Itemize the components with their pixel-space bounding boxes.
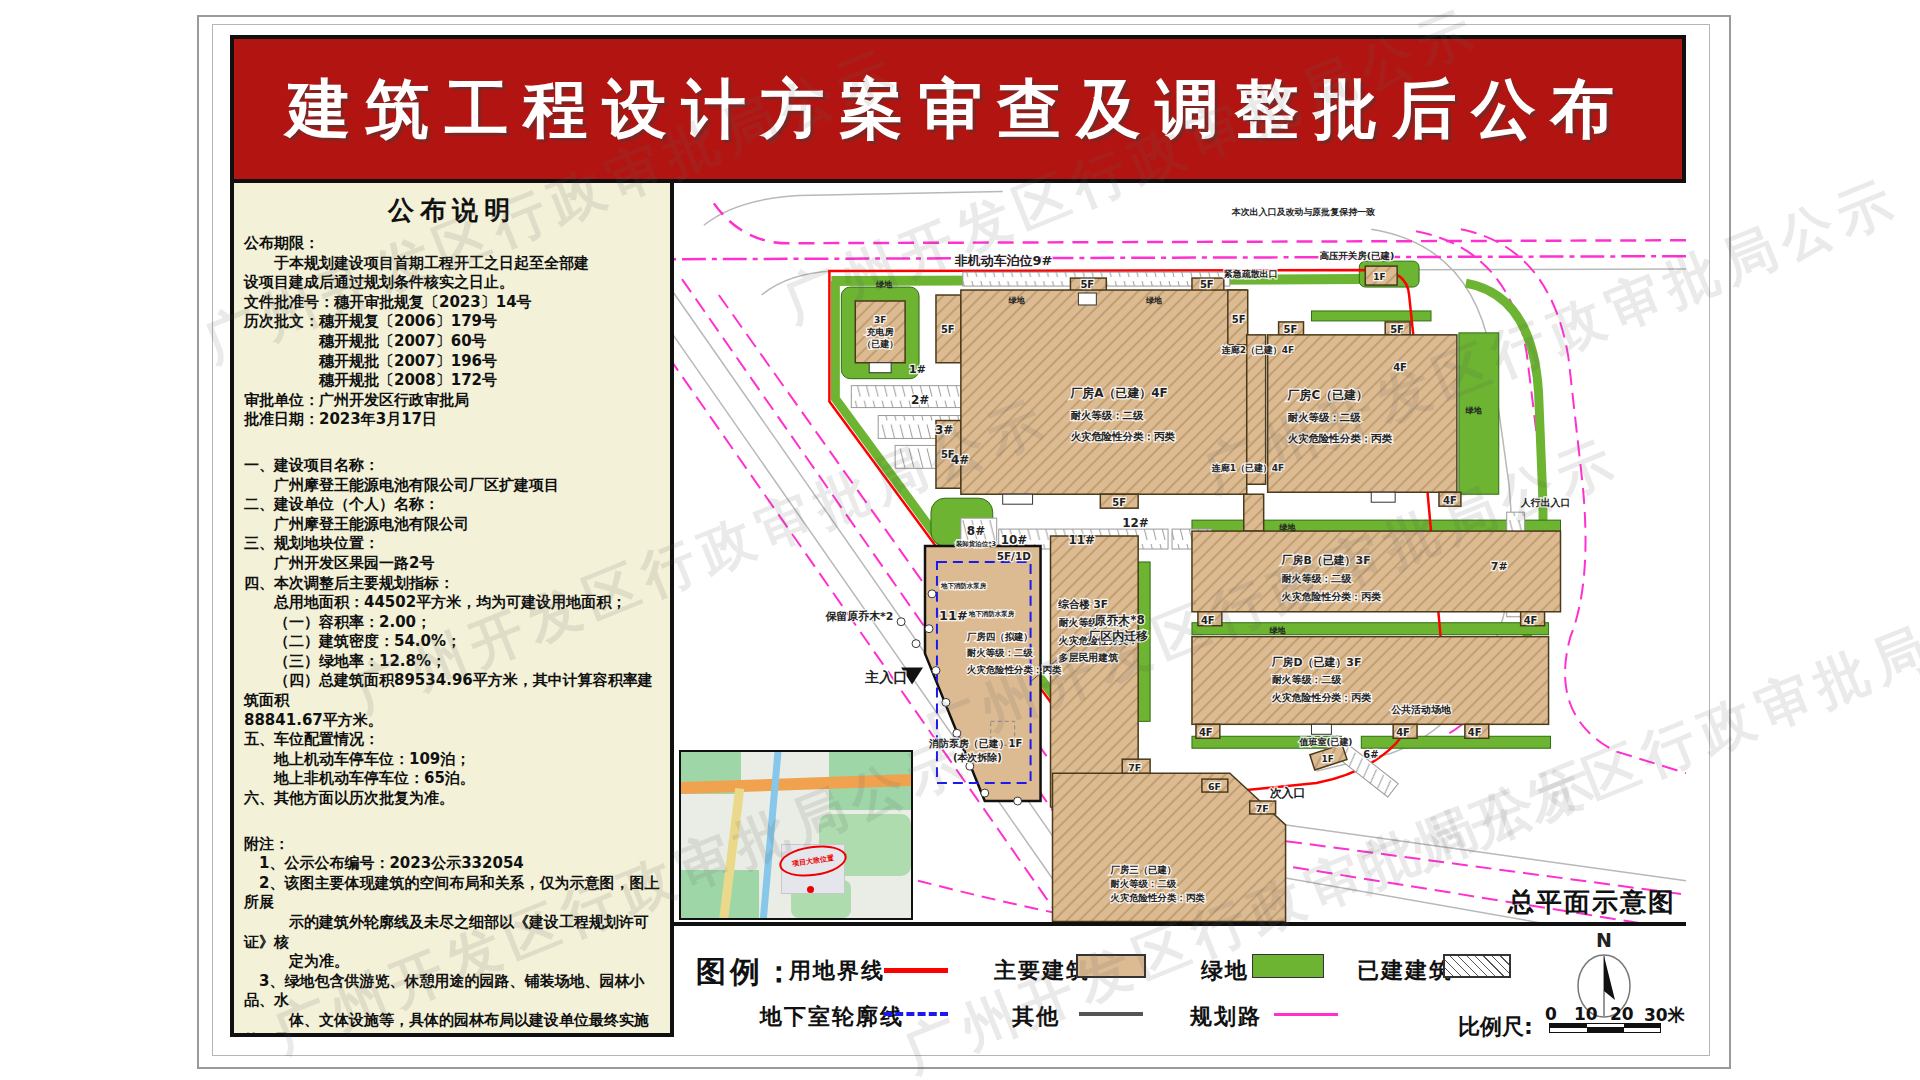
notes-line: 三、规划地块位置： xyxy=(244,534,662,554)
svg-text:高压开关房(已建): 高压开关房(已建) xyxy=(1319,250,1394,261)
notes-line: 88841.67平方米。 xyxy=(244,711,662,731)
notes-line: 地上机动车停车位：109泊； xyxy=(244,750,662,770)
svg-text:5F: 5F xyxy=(941,324,955,335)
svg-text:公共活动场地: 公共活动场地 xyxy=(1390,704,1451,715)
notes-line: 2、该图主要体现建筑的空间布局和关系，仅为示意图，图上所展 xyxy=(244,874,662,913)
svg-text:厂区内迁移: 厂区内迁移 xyxy=(1087,629,1148,643)
notes-line: 穗开规批〔2007〕196号 xyxy=(244,352,662,372)
notes-line: 体、文体设施等，具体的园林布局以建设单位最终实施的效果 xyxy=(244,1011,662,1033)
svg-text:厂房C（已建）: 厂房C（已建） xyxy=(1287,388,1368,402)
notes-line xyxy=(244,822,662,835)
svg-text:(本次拆除): (本次拆除) xyxy=(953,752,1002,763)
notes-line: 一、建设项目名称： xyxy=(244,456,662,476)
svg-text:3#: 3# xyxy=(935,423,953,437)
svg-text:地下消防水泵房: 地下消防水泵房 xyxy=(968,610,1015,618)
svg-text:主入口: 主入口 xyxy=(864,669,907,685)
inset-site-label: 项目大致位置 xyxy=(792,853,835,869)
svg-text:充电房: 充电房 xyxy=(866,327,894,337)
svg-text:12#: 12# xyxy=(1122,516,1149,530)
poster-content: 建筑工程设计方案审查及调整批后公布 公布说明 公布期限： 于本规划建设项目首期工… xyxy=(230,35,1686,1037)
notes-line: 广州摩登王能源电池有限公司厂区扩建项目 xyxy=(244,476,662,496)
svg-text:4F: 4F xyxy=(1199,727,1213,738)
svg-text:火灾危险性分类：丙类: 火灾危险性分类：丙类 xyxy=(967,664,1062,675)
svg-text:绿地: 绿地 xyxy=(1465,406,1482,415)
svg-text:绿地: 绿地 xyxy=(1269,626,1286,635)
scale-tick-20: 20 xyxy=(1610,1004,1634,1024)
notes-line: （四）总建筑面积89534.96平方米，其中计算容积率建筑面积 xyxy=(244,671,662,710)
svg-text:厂房B（已建）3F: 厂房B（已建）3F xyxy=(1281,554,1371,567)
svg-text:5F: 5F xyxy=(1284,324,1298,335)
notes-line: （一）容积率：2.00； xyxy=(244,613,662,633)
svg-text:1F: 1F xyxy=(1373,272,1385,282)
scale-tick-0: 0 xyxy=(1545,1004,1557,1024)
notes-lines: 公布期限： 于本规划建设项目首期工程开工之日起至全部建设项目建成后通过规划条件核… xyxy=(234,234,670,1033)
legend-basement-swatch xyxy=(884,1012,948,1016)
legend-planned-road-swatch xyxy=(1274,1013,1338,1016)
svg-text:5F: 5F xyxy=(1200,279,1214,290)
svg-text:7#: 7# xyxy=(1491,560,1508,573)
legend: 图例： 用地界线 主要建筑 绿地 已建建筑 地下室轮廓线 其他 规划路 N 比例… xyxy=(674,922,1686,1037)
svg-text:耐火等级：二级: 耐火等级：二级 xyxy=(967,647,1034,658)
svg-text:4F: 4F xyxy=(1524,615,1538,626)
notes-line: （二）建筑密度：54.0%； xyxy=(244,632,662,652)
svg-text:4F: 4F xyxy=(1201,615,1215,626)
legend-built-swatch xyxy=(1443,954,1511,978)
svg-text:1#: 1# xyxy=(909,363,926,376)
svg-text:11#: 11# xyxy=(1068,533,1095,547)
svg-text:耐火等级：二级: 耐火等级：二级 xyxy=(1272,674,1343,685)
notes-line: 四、本次调整后主要规划指标： xyxy=(244,574,662,594)
notes-heading: 公布说明 xyxy=(234,193,670,228)
legend-boundary-swatch xyxy=(884,968,948,973)
svg-text:1F: 1F xyxy=(1321,754,1333,764)
svg-text:厂房D（已建）3F: 厂房D（已建）3F xyxy=(1271,656,1362,669)
poster-title: 建筑工程设计方案审查及调整批后公布 xyxy=(287,66,1630,153)
legend-main-building-swatch xyxy=(1076,954,1146,978)
notes-line: 地上非机动车停车位：65泊。 xyxy=(244,769,662,789)
svg-text:4F: 4F xyxy=(1396,727,1410,738)
svg-text:火灾危险性分类：丙类: 火灾危险性分类：丙类 xyxy=(1282,591,1382,602)
svg-text:绿地: 绿地 xyxy=(1008,296,1025,305)
svg-text:耐火等级：二级: 耐火等级：二级 xyxy=(1070,409,1144,421)
notes-line: 六、其他方面以历次批复为准。 xyxy=(244,789,662,809)
svg-text:连廊2（已建）4F: 连廊2（已建）4F xyxy=(1221,345,1294,355)
svg-text:4F: 4F xyxy=(1443,495,1457,506)
scale-bar xyxy=(1549,1023,1661,1035)
svg-text:绿地: 绿地 xyxy=(1145,296,1162,305)
svg-text:次入口: 次入口 xyxy=(1270,786,1306,800)
title-banner: 建筑工程设计方案审查及调整批后公布 xyxy=(234,39,1682,183)
legend-boundary-label: 用地界线 xyxy=(789,956,885,986)
svg-text:3F: 3F xyxy=(874,315,886,325)
svg-text:11#: 11# xyxy=(939,608,968,623)
svg-text:耐火等级：二级: 耐火等级：二级 xyxy=(1110,878,1177,889)
notes-line: 设项目建成后通过规划条件核实之日止。 xyxy=(244,273,662,293)
notes-line: 公布期限： xyxy=(244,234,662,254)
legend-other-label: 其他 xyxy=(1012,1002,1060,1032)
legend-heading: 图例： xyxy=(696,952,798,993)
svg-text:原乔木*8: 原乔木*8 xyxy=(1093,613,1144,627)
svg-text:（已建）: （已建） xyxy=(862,339,898,349)
notes-line: 附注： xyxy=(244,835,662,855)
inset-site-dot xyxy=(807,886,814,893)
scale-tick-10: 10 xyxy=(1574,1004,1598,1024)
svg-text:8#: 8# xyxy=(967,524,985,538)
notes-line: 审批单位：广州开发区行政审批局 xyxy=(244,391,662,411)
svg-text:5F: 5F xyxy=(1232,314,1246,325)
notes-line: 穗开规批〔2007〕60号 xyxy=(244,332,662,352)
notes-panel: 公布说明 公布期限： 于本规划建设项目首期工程开工之日起至全部建设项目建成后通过… xyxy=(234,183,674,1033)
notice-poster: 建筑工程设计方案审查及调整批后公布 公布说明 公布期限： 于本规划建设项目首期工… xyxy=(0,0,1920,1080)
svg-text:厂房三（已建）: 厂房三（已建） xyxy=(1109,864,1176,876)
svg-text:5F: 5F xyxy=(1390,324,1404,335)
inset-river xyxy=(759,750,781,920)
svg-text:多层民用建筑: 多层民用建筑 xyxy=(1058,652,1118,663)
legend-other-swatch xyxy=(1079,1012,1143,1016)
svg-text:4F: 4F xyxy=(1468,727,1482,738)
svg-text:连廊1（已建）4F: 连廊1（已建）4F xyxy=(1211,463,1284,473)
svg-text:5F: 5F xyxy=(941,449,955,460)
svg-text:火灾危险性分类：丙类: 火灾危险性分类：丙类 xyxy=(1110,892,1205,903)
svg-text:7F: 7F xyxy=(1256,803,1269,814)
plan-caption: 总平面示意图 xyxy=(1508,885,1676,920)
svg-text:绿地: 绿地 xyxy=(875,280,892,289)
notes-line xyxy=(244,430,662,443)
svg-text:5F: 5F xyxy=(1080,279,1094,290)
scale-label: 比例尺: xyxy=(1458,1012,1533,1042)
notes-line: 于本规划建设项目首期工程开工之日起至全部建 xyxy=(244,254,662,274)
svg-text:火灾危险性分类：丙类: 火灾危险性分类：丙类 xyxy=(1272,692,1372,703)
svg-text:6#: 6# xyxy=(1363,749,1378,760)
svg-text:消防泵房（已建）1F: 消防泵房（已建）1F xyxy=(928,738,1022,749)
svg-text:2#: 2# xyxy=(911,393,929,407)
svg-text:N: N xyxy=(1596,930,1612,951)
svg-text:紧急疏散出口: 紧急疏散出口 xyxy=(1224,269,1278,279)
location-inset-map: 项目大致位置 xyxy=(679,750,913,920)
svg-text:耐火等级：二级: 耐火等级：二级 xyxy=(1288,411,1362,423)
notes-line: 历次批文：穗开规复〔2006〕179号 xyxy=(244,312,662,332)
svg-text:4F: 4F xyxy=(1393,362,1407,373)
svg-text:人行出入口: 人行出入口 xyxy=(1520,497,1571,508)
svg-text:10#: 10# xyxy=(1001,533,1028,547)
notes-line: 3、绿地包含供游览、休憩用途的园路、铺装场地、园林小品、水 xyxy=(244,972,662,1011)
notes-line xyxy=(244,809,662,822)
notes-line: 总用地面积：44502平方米，均为可建设用地面积； xyxy=(244,593,662,613)
svg-text:本次出入口及改动与原批复保持一致: 本次出入口及改动与原批复保持一致 xyxy=(1231,207,1375,217)
site-plan-area: 非机动车泊位9# 本次出入口及改动与原批复保持一致 紧急疏散出口 高压开关房(已… xyxy=(674,183,1686,922)
svg-text:火灾危险性分类：丙类: 火灾危险性分类：丙类 xyxy=(1288,432,1393,444)
svg-text:5F/1D: 5F/1D xyxy=(997,550,1031,562)
svg-text:保留原乔木*2: 保留原乔木*2 xyxy=(824,610,893,623)
notes-line: 定为准。 xyxy=(244,952,662,972)
notes-line: 广州摩登王能源电池有限公司 xyxy=(244,515,662,535)
legend-basement-label: 地下室轮廓线 xyxy=(760,1002,904,1032)
legend-green-swatch xyxy=(1252,954,1324,978)
svg-text:地下消防水泵房: 地下消防水泵房 xyxy=(940,582,987,590)
notes-line: 文件批准号：穗开审批规复〔2023〕14号 xyxy=(244,293,662,313)
svg-text:非机动车泊位9#: 非机动车泊位9# xyxy=(954,253,1052,268)
svg-text:厂房四（拟建）: 厂房四（拟建） xyxy=(966,631,1033,643)
svg-text:火灾危险性分类：丙类: 火灾危险性分类：丙类 xyxy=(1070,430,1175,442)
legend-built-label: 已建建筑 xyxy=(1357,956,1453,986)
notes-line: 示的建筑外轮廓线及未尽之细部以《建设工程规划许可证》核 xyxy=(244,913,662,952)
notes-line: 五、车位配置情况： xyxy=(244,730,662,750)
svg-text:绿地: 绿地 xyxy=(1279,523,1296,532)
svg-text:7F: 7F xyxy=(1128,762,1141,773)
notes-line: 批准日期：2023年3月17日 xyxy=(244,410,662,430)
notes-line: 广州开发区果园一路2号 xyxy=(244,554,662,574)
svg-text:厂房A（已建）4F: 厂房A（已建）4F xyxy=(1069,386,1167,400)
svg-text:装卸货泊位*3: 装卸货泊位*3 xyxy=(955,540,996,548)
scale-bar-row-2 xyxy=(1549,1028,1661,1033)
notes-line xyxy=(244,443,662,456)
svg-text:耐火等级：二级: 耐火等级：二级 xyxy=(1282,573,1353,584)
notes-line: （三）绿地率：12.8%； xyxy=(244,652,662,672)
notes-line: 1、公示公布编号：2023公示332054 xyxy=(244,854,662,874)
notes-line: 穗开规批〔2008〕172号 xyxy=(244,371,662,391)
svg-text:值班室(已建): 值班室(已建) xyxy=(1299,737,1353,747)
svg-text:5F: 5F xyxy=(1112,497,1126,508)
notes-line: 二、建设单位（个人）名称： xyxy=(244,495,662,515)
svg-text:6F: 6F xyxy=(1208,781,1221,792)
legend-green-label: 绿地 xyxy=(1201,956,1249,986)
legend-planned-road-label: 规划路 xyxy=(1190,1002,1262,1032)
svg-text:综合楼 3F: 综合楼 3F xyxy=(1057,598,1107,610)
